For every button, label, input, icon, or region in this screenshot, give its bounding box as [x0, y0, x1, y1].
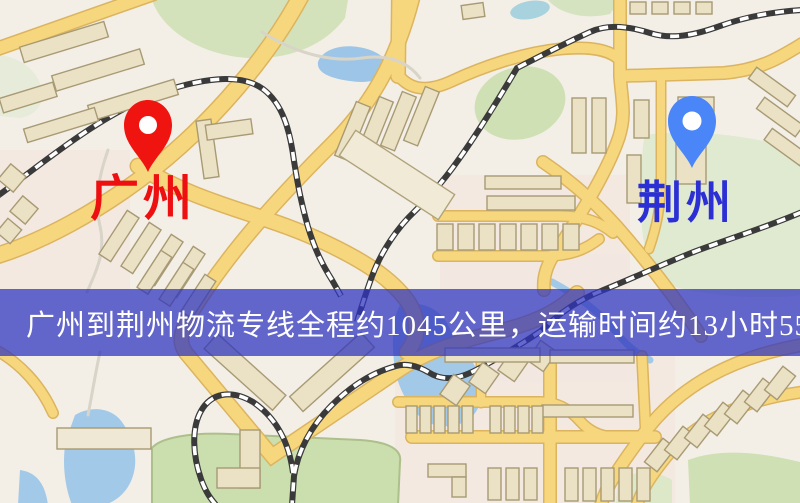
route-info-text: 广州到荆州物流专线全程约1045公里，运输时间约13小时55分钟. [0, 302, 800, 344]
map-canvas [0, 0, 800, 503]
map: 广州 荆州 广州到荆州物流专线全程约1045公里，运输时间约13小时55分钟. [0, 0, 800, 503]
origin-label: 广州 [90, 174, 196, 223]
route-info-banner: 广州到荆州物流专线全程约1045公里，运输时间约13小时55分钟. [0, 289, 800, 356]
destination-label: 荆州 [637, 181, 735, 226]
